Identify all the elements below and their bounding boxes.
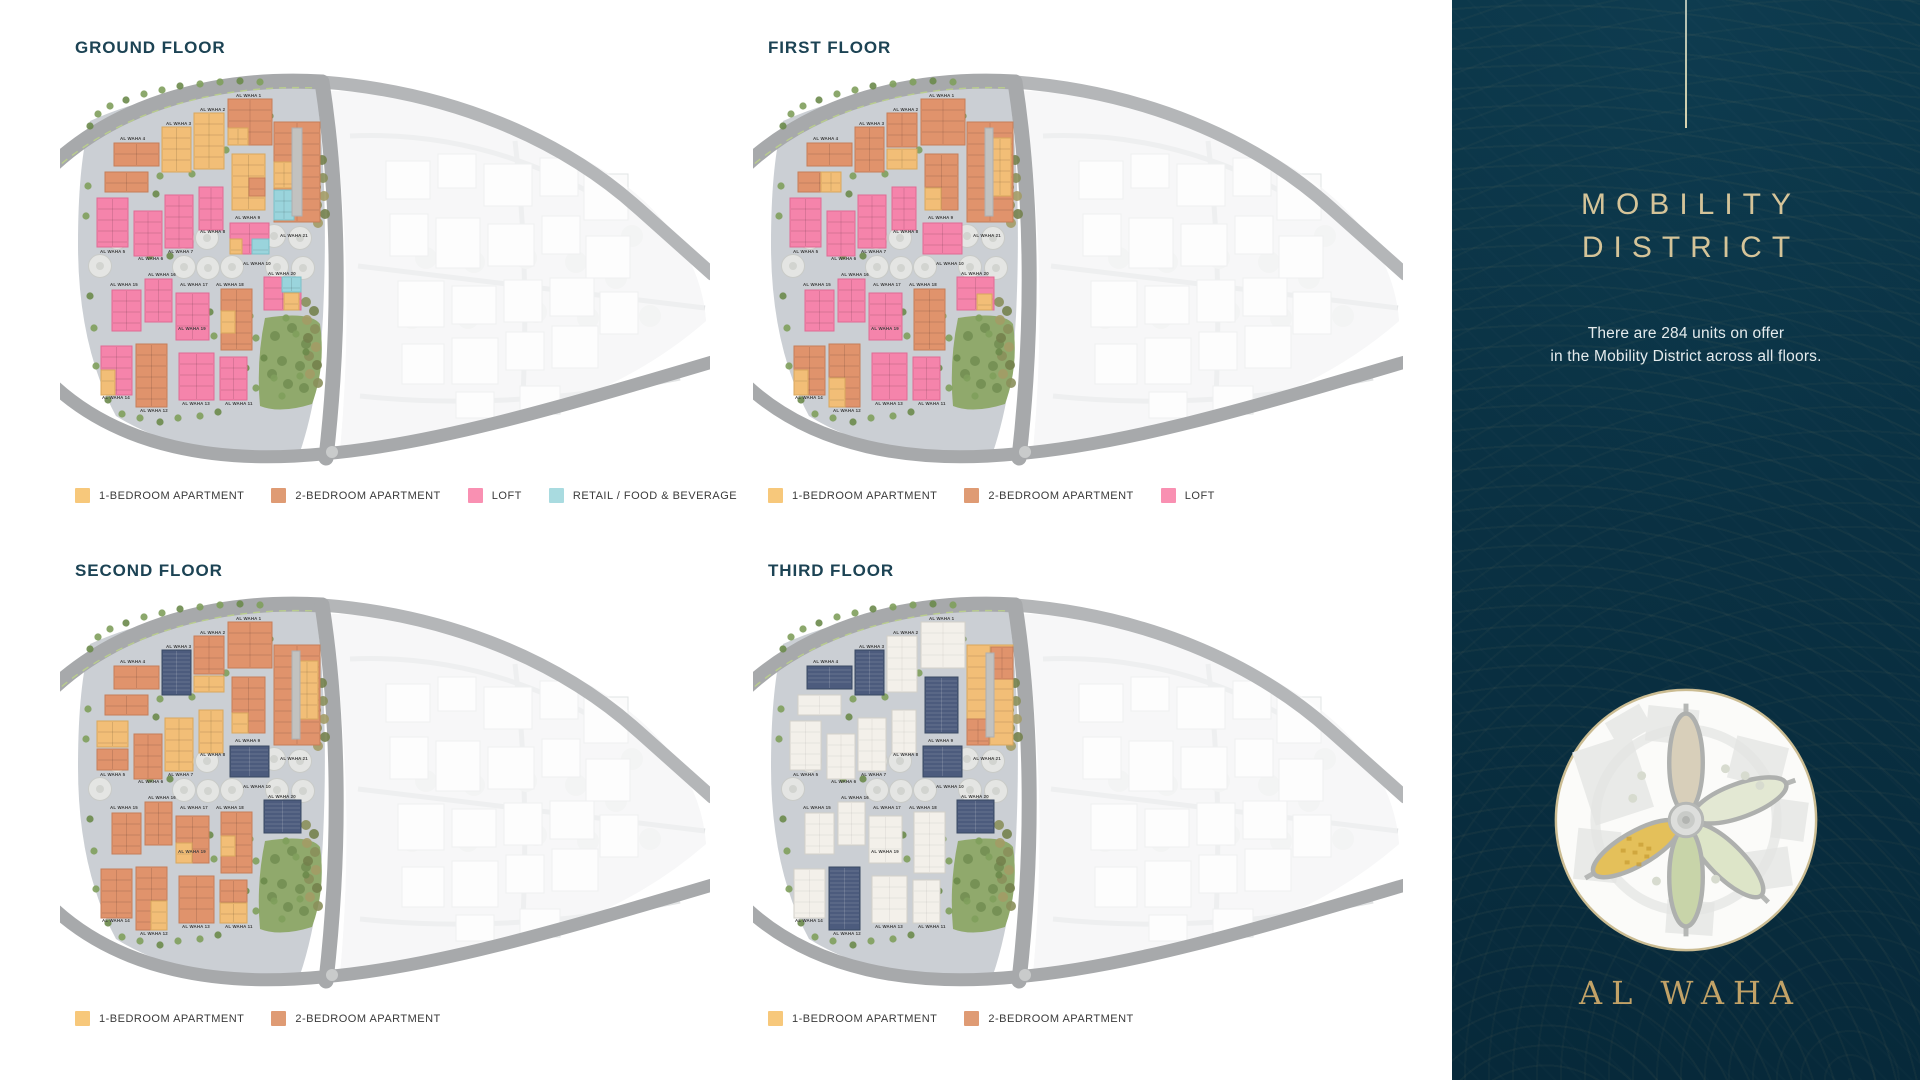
svg-text:AL WAHA 12: AL WAHA 12 [833, 408, 861, 413]
svg-text:AL WAHA 3: AL WAHA 3 [166, 121, 192, 126]
svg-text:AL WAHA 4: AL WAHA 4 [813, 136, 839, 141]
svg-text:AL WAHA 14: AL WAHA 14 [102, 918, 130, 923]
floor-legend-third: 1-BEDROOM APARTMENT2-BEDROOM APARTMENT [768, 1011, 1413, 1026]
svg-text:AL WAHA 2: AL WAHA 2 [893, 630, 919, 635]
svg-text:AL WAHA 6: AL WAHA 6 [138, 256, 164, 261]
svg-text:AL WAHA 2: AL WAHA 2 [200, 107, 226, 112]
legend-label: 2-BEDROOM APARTMENT [988, 1013, 1133, 1025]
svg-text:AL WAHA 5: AL WAHA 5 [793, 249, 819, 254]
legend-swatch [964, 1011, 979, 1026]
svg-text:AL WAHA 12: AL WAHA 12 [140, 931, 168, 936]
svg-text:AL WAHA 9: AL WAHA 9 [235, 215, 261, 220]
svg-text:AL WAHA 10: AL WAHA 10 [243, 784, 271, 789]
legend-item: 2-BEDROOM APARTMENT [964, 1011, 1133, 1026]
svg-text:AL WAHA 7: AL WAHA 7 [168, 249, 194, 254]
svg-text:AL WAHA 5: AL WAHA 5 [100, 249, 126, 254]
svg-text:AL WAHA 5: AL WAHA 5 [100, 772, 126, 777]
svg-text:AL WAHA 14: AL WAHA 14 [795, 395, 823, 400]
svg-text:AL WAHA 21: AL WAHA 21 [280, 756, 308, 761]
svg-text:AL WAHA 21: AL WAHA 21 [973, 756, 1001, 761]
svg-text:AL WAHA 11: AL WAHA 11 [918, 924, 946, 929]
legend-label: 1-BEDROOM APARTMENT [792, 1013, 937, 1025]
legend-swatch [1161, 488, 1176, 503]
legend-swatch [768, 1011, 783, 1026]
svg-text:AL WAHA 8: AL WAHA 8 [893, 752, 919, 757]
ground-floor-map: AL WAHA 1AL WAHA 2AL WAHA 3AL WAHA 4AL W… [60, 66, 710, 466]
svg-text:AL WAHA 11: AL WAHA 11 [225, 924, 253, 929]
svg-text:AL WAHA 18: AL WAHA 18 [909, 282, 937, 287]
svg-text:AL WAHA 17: AL WAHA 17 [180, 282, 208, 287]
floor-legend-first: 1-BEDROOM APARTMENT2-BEDROOM APARTMENTLO… [768, 488, 1413, 503]
svg-text:AL WAHA 7: AL WAHA 7 [861, 249, 887, 254]
svg-text:AL WAHA 9: AL WAHA 9 [928, 738, 954, 743]
masterplan-minimap [1548, 682, 1824, 958]
svg-text:AL WAHA 4: AL WAHA 4 [120, 659, 146, 664]
legend-swatch [964, 488, 979, 503]
floor-section-first: FIRST FLOOR AL WAHA 1AL WAHA 2AL WAHA 3A… [753, 38, 1413, 503]
page: GROUND FLOOR AL WAHA 1AL WAHA 2AL WAHA 3… [0, 0, 1920, 1080]
legend-label: RETAIL / FOOD & BEVERAGE [573, 490, 737, 502]
legend-swatch [75, 1011, 90, 1026]
svg-text:AL WAHA 4: AL WAHA 4 [120, 136, 146, 141]
svg-text:AL WAHA 2: AL WAHA 2 [200, 630, 226, 635]
legend-item: 1-BEDROOM APARTMENT [75, 1011, 244, 1026]
legend-swatch [768, 488, 783, 503]
svg-text:AL WAHA 9: AL WAHA 9 [235, 738, 261, 743]
legend-swatch [549, 488, 564, 503]
first-floor-map: AL WAHA 1AL WAHA 2AL WAHA 3AL WAHA 4AL W… [753, 66, 1403, 466]
svg-text:AL WAHA 13: AL WAHA 13 [875, 924, 903, 929]
second-floor-map: AL WAHA 1AL WAHA 2AL WAHA 3AL WAHA 4AL W… [60, 589, 710, 989]
floor-section-third: THIRD FLOOR AL WAHA 1AL WAHA 2AL WAHA 3A… [753, 561, 1413, 1026]
svg-text:AL WAHA 17: AL WAHA 17 [873, 805, 901, 810]
decorative-vertical-line [1685, 0, 1687, 128]
floor-legend-second: 1-BEDROOM APARTMENT2-BEDROOM APARTMENT [75, 1011, 720, 1026]
floor-legend-ground: 1-BEDROOM APARTMENT2-BEDROOM APARTMENTLO… [75, 488, 720, 503]
svg-text:AL WAHA 16: AL WAHA 16 [148, 795, 176, 800]
floor-title-ground: GROUND FLOOR [75, 38, 720, 58]
legend-item: 2-BEDROOM APARTMENT [271, 488, 440, 503]
svg-text:AL WAHA 8: AL WAHA 8 [200, 229, 226, 234]
floor-section-ground: GROUND FLOOR AL WAHA 1AL WAHA 2AL WAHA 3… [60, 38, 720, 503]
legend-swatch [75, 488, 90, 503]
svg-text:AL WAHA 13: AL WAHA 13 [182, 401, 210, 406]
legend-label: 1-BEDROOM APARTMENT [99, 1013, 244, 1025]
svg-text:AL WAHA 13: AL WAHA 13 [875, 401, 903, 406]
legend-label: 1-BEDROOM APARTMENT [792, 490, 937, 502]
svg-text:AL WAHA 16: AL WAHA 16 [841, 272, 869, 277]
svg-text:AL WAHA 18: AL WAHA 18 [909, 805, 937, 810]
svg-text:AL WAHA 7: AL WAHA 7 [168, 772, 194, 777]
svg-text:AL WAHA 12: AL WAHA 12 [833, 931, 861, 936]
svg-text:AL WAHA 15: AL WAHA 15 [110, 805, 138, 810]
svg-text:AL WAHA 13: AL WAHA 13 [182, 924, 210, 929]
brand-logo: AL WAHA [1452, 974, 1920, 1012]
svg-text:AL WAHA 3: AL WAHA 3 [859, 644, 885, 649]
district-subtitle: There are 284 units on offer in the Mobi… [1452, 322, 1920, 368]
svg-text:AL WAHA 3: AL WAHA 3 [859, 121, 885, 126]
svg-text:AL WAHA 9: AL WAHA 9 [928, 215, 954, 220]
legend-item: LOFT [1161, 488, 1215, 503]
legend-item: 2-BEDROOM APARTMENT [271, 1011, 440, 1026]
svg-text:AL WAHA 2: AL WAHA 2 [893, 107, 919, 112]
svg-text:AL WAHA 15: AL WAHA 15 [110, 282, 138, 287]
district-subtitle-line2: in the Mobility District across all floo… [1452, 345, 1920, 368]
legend-swatch [271, 488, 286, 503]
svg-text:AL WAHA 12: AL WAHA 12 [140, 408, 168, 413]
svg-text:AL WAHA 21: AL WAHA 21 [280, 233, 308, 238]
svg-text:AL WAHA 10: AL WAHA 10 [936, 261, 964, 266]
svg-text:AL WAHA 5: AL WAHA 5 [793, 772, 819, 777]
legend-swatch [271, 1011, 286, 1026]
svg-text:AL WAHA 20: AL WAHA 20 [961, 271, 989, 276]
svg-text:AL WAHA 6: AL WAHA 6 [138, 779, 164, 784]
svg-text:AL WAHA 19: AL WAHA 19 [178, 326, 206, 331]
svg-text:AL WAHA 11: AL WAHA 11 [225, 401, 253, 406]
third-floor-map: AL WAHA 1AL WAHA 2AL WAHA 3AL WAHA 4AL W… [753, 589, 1403, 989]
svg-text:AL WAHA 8: AL WAHA 8 [200, 752, 226, 757]
svg-text:AL WAHA 18: AL WAHA 18 [216, 805, 244, 810]
svg-text:AL WAHA 7: AL WAHA 7 [861, 772, 887, 777]
legend-label: 2-BEDROOM APARTMENT [295, 1013, 440, 1025]
svg-text:AL WAHA 19: AL WAHA 19 [178, 849, 206, 854]
legend-label: LOFT [492, 490, 522, 502]
legend-label: LOFT [1185, 490, 1215, 502]
svg-text:AL WAHA 15: AL WAHA 15 [803, 282, 831, 287]
svg-text:AL WAHA 18: AL WAHA 18 [216, 282, 244, 287]
svg-text:AL WAHA 11: AL WAHA 11 [918, 401, 946, 406]
svg-text:AL WAHA 19: AL WAHA 19 [871, 849, 899, 854]
legend-label: 2-BEDROOM APARTMENT [988, 490, 1133, 502]
svg-text:AL WAHA 16: AL WAHA 16 [841, 795, 869, 800]
district-title-line2: DISTRICT [1452, 226, 1920, 269]
svg-text:AL WAHA 16: AL WAHA 16 [148, 272, 176, 277]
svg-text:AL WAHA 20: AL WAHA 20 [961, 794, 989, 799]
svg-text:AL WAHA 17: AL WAHA 17 [873, 282, 901, 287]
legend-item: 1-BEDROOM APARTMENT [75, 488, 244, 503]
svg-text:AL WAHA 20: AL WAHA 20 [268, 794, 296, 799]
svg-text:AL WAHA 3: AL WAHA 3 [166, 644, 192, 649]
floor-title-third: THIRD FLOOR [768, 561, 1413, 581]
legend-label: 2-BEDROOM APARTMENT [295, 490, 440, 502]
info-panel: MOBILITY DISTRICT There are 284 units on… [1452, 0, 1920, 1080]
svg-text:AL WAHA 1: AL WAHA 1 [236, 616, 262, 621]
svg-text:AL WAHA 20: AL WAHA 20 [268, 271, 296, 276]
district-subtitle-line1: There are 284 units on offer [1452, 322, 1920, 345]
svg-text:AL WAHA 1: AL WAHA 1 [929, 616, 955, 621]
svg-text:AL WAHA 14: AL WAHA 14 [795, 918, 823, 923]
legend-swatch [468, 488, 483, 503]
floor-title-first: FIRST FLOOR [768, 38, 1413, 58]
svg-text:AL WAHA 21: AL WAHA 21 [973, 233, 1001, 238]
floor-title-second: SECOND FLOOR [75, 561, 720, 581]
svg-text:AL WAHA 6: AL WAHA 6 [831, 779, 857, 784]
legend-item: 2-BEDROOM APARTMENT [964, 488, 1133, 503]
svg-text:AL WAHA 4: AL WAHA 4 [813, 659, 839, 664]
floor-section-second: SECOND FLOOR AL WAHA 1AL WAHA 2AL WAHA 3… [60, 561, 720, 1026]
svg-text:AL WAHA 15: AL WAHA 15 [803, 805, 831, 810]
legend-item: LOFT [468, 488, 522, 503]
district-title-line1: MOBILITY [1452, 183, 1920, 226]
svg-text:AL WAHA 17: AL WAHA 17 [180, 805, 208, 810]
svg-text:AL WAHA 14: AL WAHA 14 [102, 395, 130, 400]
legend-item: 1-BEDROOM APARTMENT [768, 1011, 937, 1026]
district-title: MOBILITY DISTRICT [1452, 183, 1920, 269]
svg-text:AL WAHA 1: AL WAHA 1 [929, 93, 955, 98]
legend-item: 1-BEDROOM APARTMENT [768, 488, 937, 503]
svg-text:AL WAHA 10: AL WAHA 10 [243, 261, 271, 266]
svg-text:AL WAHA 1: AL WAHA 1 [236, 93, 262, 98]
svg-text:AL WAHA 8: AL WAHA 8 [893, 229, 919, 234]
legend-label: 1-BEDROOM APARTMENT [99, 490, 244, 502]
svg-text:AL WAHA 19: AL WAHA 19 [871, 326, 899, 331]
svg-text:AL WAHA 10: AL WAHA 10 [936, 784, 964, 789]
svg-text:AL WAHA 6: AL WAHA 6 [831, 256, 857, 261]
legend-item: RETAIL / FOOD & BEVERAGE [549, 488, 737, 503]
